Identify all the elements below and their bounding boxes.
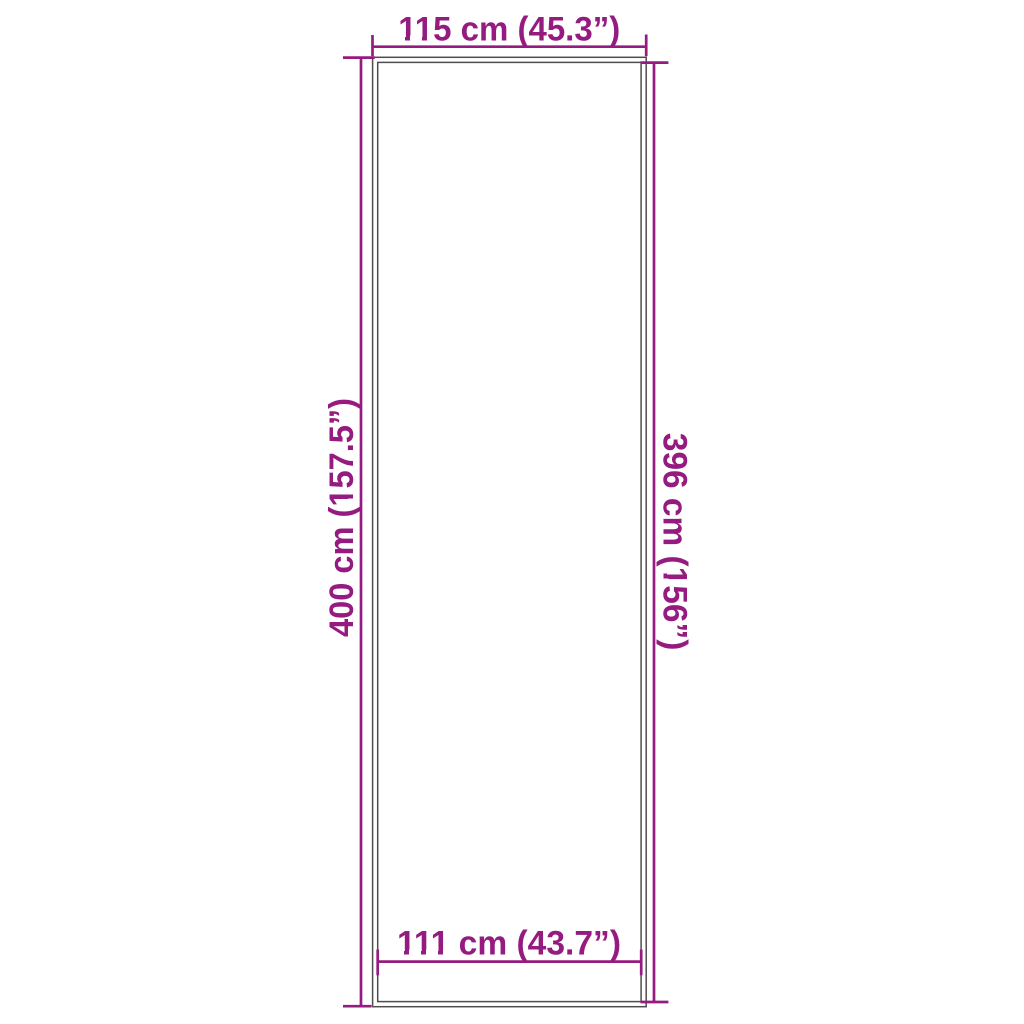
svg-text:115 cm (45.3”): 115 cm (45.3”) [398, 10, 620, 48]
svg-text:396 cm (156”): 396 cm (156”) [655, 433, 693, 651]
svg-text:400 cm (157.5”): 400 cm (157.5”) [323, 398, 361, 637]
svg-text:111 cm (43.7”): 111 cm (43.7”) [397, 925, 621, 963]
